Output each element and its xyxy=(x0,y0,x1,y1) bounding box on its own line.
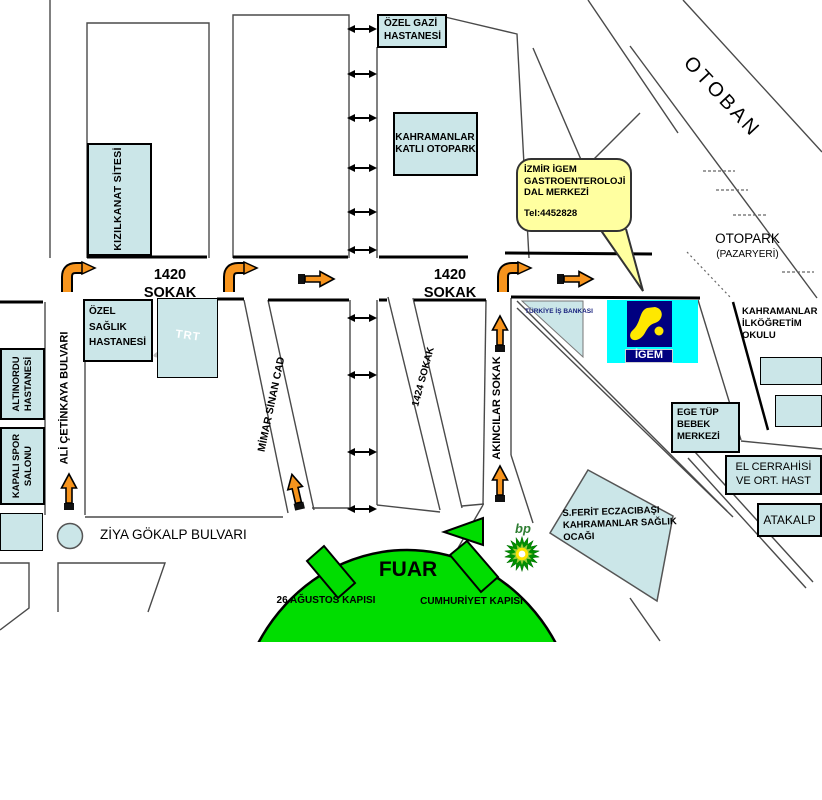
building-small-left xyxy=(0,513,43,551)
pazaryeri-label: (PAZARYERİ) xyxy=(705,249,790,261)
street-akincilar-label: AKINCILAR SOKAK xyxy=(491,353,505,463)
building-empty-2 xyxy=(775,395,822,427)
igem-stomach-icon xyxy=(627,301,672,347)
building-altinordu-label: ALTINORDU HASTANESİ xyxy=(11,350,33,418)
up-arrow-mimar xyxy=(285,473,308,511)
gate-cumhuriyet-label: CUMHURİYET KAPISI xyxy=(419,596,524,608)
building-ege-tup: EGE TÜP BEBEK MERKEZİ xyxy=(671,402,740,453)
building-kizilkanat-label: KIZILKANAT SİTESİ xyxy=(112,144,126,254)
igem-logo-square xyxy=(627,301,672,347)
building-ozel-gazi: ÖZEL GAZİ HASTANESİ xyxy=(377,14,447,48)
direction-triangle xyxy=(444,518,483,545)
building-el-cerrahisi: EL CERRAHİSİ VE ORT. HAST xyxy=(725,455,822,495)
turn-arrow xyxy=(229,262,257,292)
callout-title: İZMİR İGEM GASTROENTEROLOJİ DAL MERKEZİ xyxy=(524,164,628,206)
building-kapali-spor-label: KAPALI SPOR SALONU xyxy=(11,429,33,503)
right-arrow xyxy=(557,272,593,287)
street-1420-label-east: 1420 SOKAK xyxy=(406,266,494,282)
up-arrow xyxy=(493,316,508,352)
sferit-label: S.FERİT ECZACIBAŞI KAHRAMANLAR SAĞLIK OC… xyxy=(562,504,685,552)
igem-logo-label: İGEM xyxy=(625,349,673,363)
street-1420-label-west: 1420 SOKAK xyxy=(128,266,212,282)
up-arrow xyxy=(62,474,77,510)
building-katli-otopark: KAHRAMANLAR KATLI OTOPARK xyxy=(393,112,478,176)
turn-arrow xyxy=(67,262,95,292)
otopark-label: OTOPARK xyxy=(705,231,790,246)
roundabout xyxy=(58,524,83,549)
kahramanlar-okul-label: KAHRAMANLAR İLKÖĞRETİM OKULU xyxy=(742,306,822,346)
street-ziya-gokalp-label: ZİYA GÖKALP BULVARI xyxy=(100,527,270,543)
isbank-logo-label: TÜRKİYE İŞ BANKASI xyxy=(520,306,598,318)
callout-phone: Tel:4452828 xyxy=(524,208,628,220)
building-ozel-saglik: ÖZEL SAĞLIK HASTANESİ xyxy=(83,299,153,362)
two-way-arrows xyxy=(347,25,377,513)
street-ali-cetinkaya-label: ALİ ÇETİNKAYA BULVARI xyxy=(59,326,73,471)
turn-arrow xyxy=(503,262,531,292)
igem-location-map: ÖZEL GAZİ HASTANESİ KAHRAMANLAR KATLI OT… xyxy=(0,0,822,800)
up-arrow xyxy=(493,466,508,502)
building-atakalp: ATAKALP xyxy=(757,503,822,537)
bottom-mask xyxy=(0,642,822,800)
igem-building: İGEM xyxy=(607,300,698,363)
bp-logo-label: bp xyxy=(515,521,541,535)
gate-26agustos-label: 26 AĞUSTOS KAPISI xyxy=(276,595,376,607)
bp-logo xyxy=(505,537,539,572)
building-empty-1 xyxy=(760,357,822,385)
right-arrow xyxy=(298,272,334,287)
fuar-label: FUAR xyxy=(363,557,453,581)
